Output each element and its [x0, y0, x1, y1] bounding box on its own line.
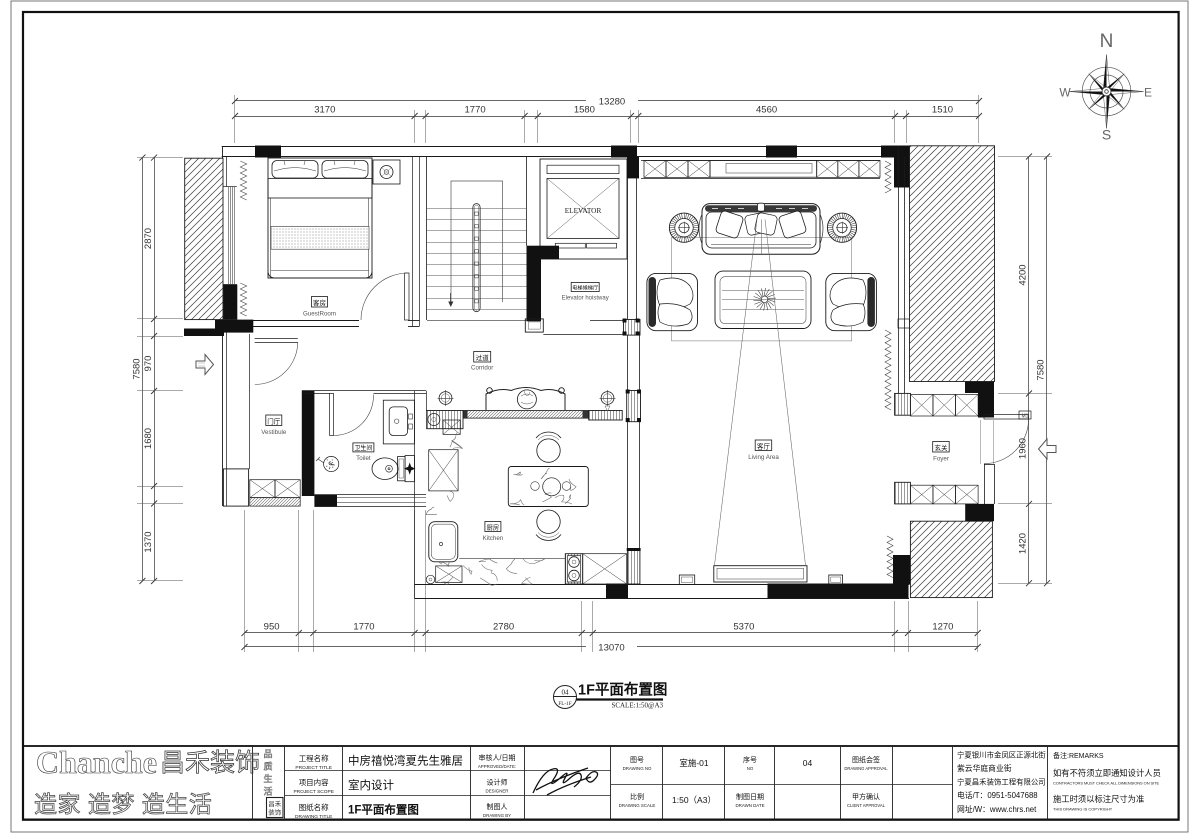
svg-text:M1: M1 [1022, 413, 1029, 419]
svg-text:网址/W：www.chrs.net: 网址/W：www.chrs.net [957, 804, 1037, 814]
svg-text:Foyer: Foyer [933, 456, 949, 463]
svg-text:厨房: 厨房 [487, 522, 500, 531]
svg-text:昌禾: 昌禾 [268, 800, 282, 808]
svg-text:昌禾装饰: 昌禾装饰 [160, 749, 260, 777]
svg-text:中房禧悦湾夏先生雅居: 中房禧悦湾夏先生雅居 [348, 754, 463, 768]
svg-text:设计师: 设计师 [487, 778, 508, 787]
svg-text:1F平面布置图: 1F平面布置图 [348, 803, 419, 817]
svg-text:Chanche: Chanche [36, 744, 157, 780]
svg-text:宁夏银川市金凤区正源北街: 宁夏银川市金凤区正源北街 [957, 751, 1046, 760]
svg-text:Vestibule: Vestibule [261, 429, 287, 436]
svg-text:DRAWING SCALE: DRAWING SCALE [619, 803, 656, 808]
svg-text:1F平面布置图: 1F平面布置图 [578, 681, 667, 699]
svg-text:CONTRACTORS MUST CHECK ALL DIM: CONTRACTORS MUST CHECK ALL DIMENSIONS ON… [1053, 781, 1160, 786]
svg-text:电梯候梯厅: 电梯候梯厅 [572, 284, 598, 292]
svg-text:PROJECT SCOPE: PROJECT SCOPE [293, 789, 333, 795]
svg-text:1270: 1270 [932, 622, 953, 633]
svg-text:5370: 5370 [733, 622, 754, 633]
svg-text:4200: 4200 [1017, 264, 1028, 285]
svg-text:生: 生 [263, 773, 272, 784]
svg-text:04: 04 [562, 689, 570, 697]
svg-text:S: S [1102, 127, 1111, 143]
svg-text:GuestRoom: GuestRoom [303, 311, 336, 318]
svg-text:1510: 1510 [932, 105, 953, 116]
svg-text:970: 970 [143, 356, 154, 372]
svg-text:Toilet: Toilet [356, 455, 371, 462]
svg-text:1580: 1580 [574, 105, 595, 116]
svg-text:CLIENT APPROVAL: CLIENT APPROVAL [847, 803, 886, 808]
svg-text:APPROVED/DATE:: APPROVED/DATE: [478, 764, 516, 769]
svg-text:质: 质 [263, 761, 272, 772]
svg-text:Corridor: Corridor [471, 365, 493, 372]
svg-text:工程名称: 工程名称 [299, 753, 329, 763]
svg-text:4560: 4560 [756, 105, 777, 116]
svg-text:室内设计: 室内设计 [348, 778, 394, 792]
svg-text:DRAWING TITLE: DRAWING TITLE [295, 814, 332, 820]
svg-text:Living Area: Living Area [748, 454, 779, 461]
svg-text:1770: 1770 [465, 105, 486, 116]
svg-text:W: W [1059, 86, 1071, 100]
svg-text:2780: 2780 [493, 622, 514, 633]
svg-text:2870: 2870 [143, 228, 154, 249]
svg-text:DRAWING NO: DRAWING NO [623, 766, 652, 771]
svg-text:950: 950 [264, 622, 280, 633]
svg-text:如有不符须立即通知设计人员: 如有不符须立即通知设计人员 [1053, 768, 1161, 778]
svg-text:比例: 比例 [630, 792, 644, 801]
svg-text:04: 04 [803, 758, 813, 768]
svg-text:过道: 过道 [476, 353, 490, 362]
svg-text:13070: 13070 [598, 643, 624, 654]
svg-text:1770: 1770 [353, 622, 374, 633]
svg-text:13280: 13280 [599, 97, 625, 108]
svg-text:施工时须以标注尺寸为准: 施工时须以标注尺寸为准 [1053, 794, 1144, 804]
svg-text:序号: 序号 [743, 755, 757, 764]
svg-text:Kitchen: Kitchen [483, 535, 504, 542]
svg-text:客房: 客房 [313, 298, 326, 307]
svg-text:PROJECT TITLE: PROJECT TITLE [295, 765, 332, 771]
svg-text:1420: 1420 [1017, 533, 1028, 554]
svg-text:甲方确认: 甲方确认 [852, 792, 880, 801]
svg-text:7580: 7580 [131, 358, 142, 379]
svg-text:品: 品 [263, 749, 272, 759]
svg-text:FL-1F: FL-1F [558, 701, 571, 707]
svg-text:玄关: 玄关 [935, 443, 949, 452]
svg-text:项目内容: 项目内容 [299, 777, 329, 787]
svg-text:制图人: 制图人 [487, 802, 508, 811]
svg-text:图号: 图号 [630, 756, 644, 764]
svg-text:门厅: 门厅 [267, 416, 281, 425]
svg-text:N: N [1100, 31, 1114, 52]
svg-text:宁夏昌禾装饰工程有限公司: 宁夏昌禾装饰工程有限公司 [957, 778, 1046, 787]
svg-text:1:50（A3）: 1:50（A3） [672, 795, 716, 805]
svg-text:活: 活 [263, 786, 272, 797]
svg-text:紫云华庭商业街: 紫云华庭商业街 [957, 763, 1012, 773]
svg-text:7580: 7580 [1036, 359, 1047, 380]
svg-text:制图日期: 制图日期 [736, 792, 764, 801]
svg-text:卫生间: 卫生间 [354, 444, 372, 452]
svg-text:E: E [1144, 86, 1152, 100]
svg-text:SCALE:1:50@A3: SCALE:1:50@A3 [611, 702, 663, 710]
svg-text:客厅: 客厅 [757, 441, 771, 450]
svg-text:DRAWING APPROVAL: DRAWING APPROVAL [844, 766, 888, 771]
svg-text:ELEVATOR: ELEVATOR [565, 206, 602, 215]
svg-text:DRAWN DATE: DRAWN DATE [735, 803, 764, 808]
svg-text:DRAWING BY: DRAWING BY [483, 813, 511, 818]
svg-text:DESIGNER: DESIGNER [486, 789, 509, 794]
svg-text:造家 造梦 造生活: 造家 造梦 造生活 [34, 791, 212, 817]
svg-text:NO: NO [747, 766, 754, 771]
svg-text:室施-01: 室施-01 [679, 758, 709, 768]
svg-text:图纸会签: 图纸会签 [852, 755, 880, 764]
svg-text:3170: 3170 [314, 105, 335, 116]
svg-text:审核人/日期: 审核人/日期 [479, 753, 516, 762]
svg-text:装饰: 装饰 [268, 808, 282, 817]
svg-text:Elevator hoistway: Elevator hoistway [562, 296, 609, 302]
svg-text:1370: 1370 [143, 531, 154, 552]
svg-text:图纸名称: 图纸名称 [299, 802, 329, 812]
svg-text:备注:REMARKS: 备注:REMARKS [1053, 751, 1104, 760]
svg-text:电话/T：0951-5047688: 电话/T：0951-5047688 [957, 790, 1038, 800]
svg-text:THIS DRAWING IS COPYRIGHT: THIS DRAWING IS COPYRIGHT [1053, 807, 1113, 812]
svg-text:1680: 1680 [143, 428, 154, 449]
